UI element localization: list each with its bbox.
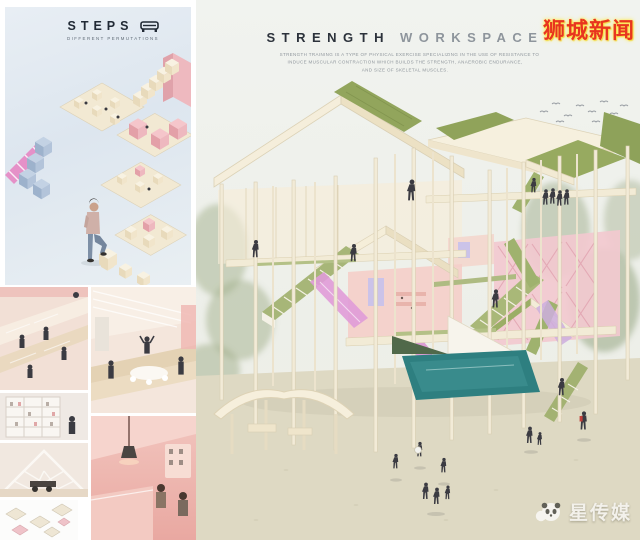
steps-isometric-diagrams (5, 7, 191, 285)
steps-diagram-panel: STEPS DIFFERENT PERMUTATIONS (5, 7, 191, 285)
subtitle-line-1: STRENGTH TRAINING IS A TYPE OF PHYSICAL … (280, 51, 531, 59)
strength-workspace-panel: STRENGTHWORKSPACE STRENGTH TRAINING IS A… (196, 0, 640, 540)
steps-bench-icon (140, 20, 159, 33)
iso-cluster-benches (101, 162, 181, 208)
climbing-man-figure (81, 198, 117, 269)
iso-cluster-bottom (115, 215, 186, 256)
subtitle-line-3: AND SIZE OF SKELETAL MUSCLES. (280, 66, 531, 74)
subtitle-line-2: INDUCE MUSCULAR CONTRACTION WHICH BUILDS… (280, 59, 531, 67)
steps-subtitle: DIFFERENT PERMUTATIONS (65, 37, 162, 41)
media-watermark-text: 星传媒 (569, 498, 632, 525)
photo-pink-cafe (91, 416, 196, 540)
title-workspace: WORKSPACE (400, 30, 543, 45)
main-subtitle: STRENGTH TRAINING IS A TYPE OF PHYSICAL … (280, 51, 531, 74)
photo-truss-attic (0, 443, 88, 497)
photo-stairs-interior (0, 287, 88, 390)
photo-shelf-interior (0, 393, 88, 440)
steps-header: STEPS DIFFERENT PERMUTATIONS (5, 17, 191, 44)
steps-title: STEPS (68, 19, 134, 33)
presentation-board: STEPS DIFFERENT PERMUTATIONS (0, 0, 640, 540)
left-column: STEPS DIFFERENT PERMUTATIONS (0, 0, 196, 540)
iso-cluster-pink (117, 113, 191, 156)
panda-mascot-icon (534, 500, 564, 524)
iso-cluster-stairs (133, 53, 191, 107)
interior-photo-collage (0, 287, 196, 540)
news-watermark: 狮城新闻 (543, 13, 635, 45)
photo-mini-diagrams (0, 500, 78, 540)
title-strength: STRENGTH (267, 30, 391, 45)
photo-tiered-seating (91, 287, 196, 413)
media-watermark: 星传媒 (534, 498, 632, 525)
